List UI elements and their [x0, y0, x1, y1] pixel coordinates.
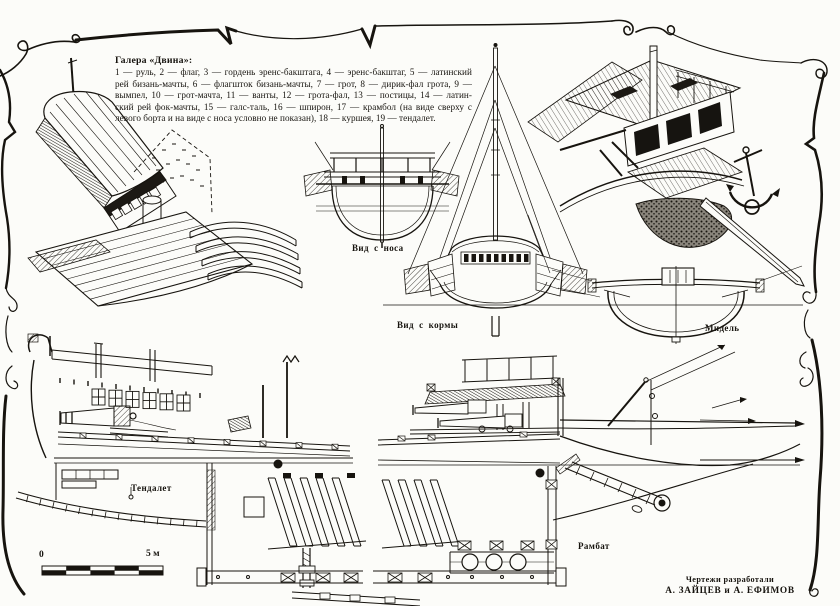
bow-side-elevation-drawing: [378, 345, 805, 466]
legend-line: 1 — руль, 2 — флаг, 3 — гордень эренс-ба…: [115, 67, 472, 79]
legend-line: левого борта и на виде с носа условно не…: [115, 113, 472, 125]
magazine-drawing-page: Галера «Двина»: 1 — руль, 2 — флаг, 3 — …: [0, 0, 840, 606]
bow-view-label: Вид с носа: [352, 243, 404, 253]
scale-end-label: 5 м: [146, 549, 160, 559]
center-plan-drawing: [197, 454, 580, 606]
stern-view-label: Вид с кормы: [397, 320, 458, 330]
rambat-label: Рамбат: [578, 541, 610, 551]
midship-label: Мидель: [705, 323, 739, 333]
credits-block: Чертежи разработали А. ЗАЙЦЕВ и А. ЕФИМО…: [648, 575, 812, 596]
legend-title: Галера «Двина»:: [115, 55, 472, 67]
bow-view-drawing: [304, 125, 459, 249]
legend-block: Галера «Двина»: 1 — руль, 2 — флаг, 3 — …: [115, 55, 472, 125]
legend-line: ский рей фок-мачты, 15 — галс-таль, 16 —…: [115, 102, 472, 114]
stern-side-elevation-drawing: [28, 334, 353, 463]
scale-bar: [42, 566, 163, 575]
credits-line1: Чертежи разработали: [648, 575, 812, 586]
credits-line2: А. ЗАЙЦЕВ и А. ЕФИМОВ: [648, 586, 812, 597]
scale-start-label: 0: [39, 550, 44, 560]
bow-cutaway-drawing: [528, 46, 804, 286]
legend-line: вымпел, 10 — грот-мачта, 11 — ванты, 12 …: [115, 90, 472, 102]
tendalet-label: Тендалет: [131, 483, 172, 493]
bow-plan-drawing: [553, 457, 805, 520]
legend-line: рей бизань-мачты, 6 — флагшток бизань-ма…: [115, 79, 472, 91]
